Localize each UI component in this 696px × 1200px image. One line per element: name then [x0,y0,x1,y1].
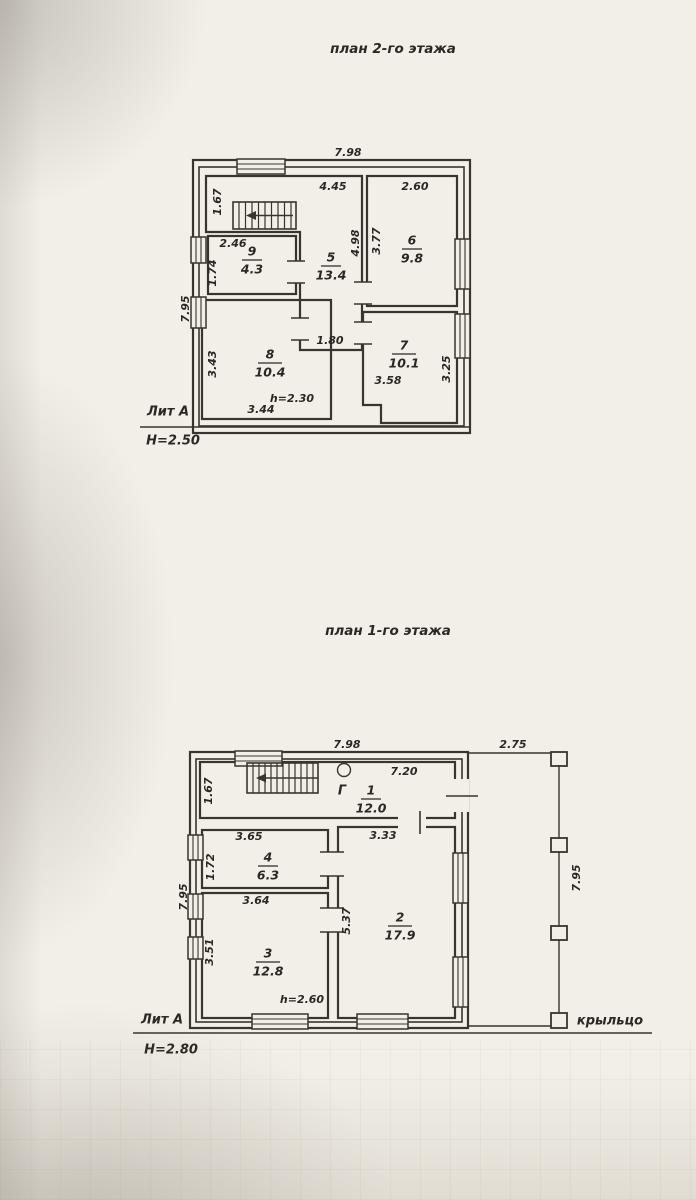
room6-number: 6 [408,233,417,248]
room7-area: 10.1 [389,356,420,371]
room3-number: 3 [264,946,273,961]
window-icon [188,937,203,959]
window-icon [237,159,285,174]
room8-number: 8 [266,347,275,362]
dim-f1-stair-left: 1.67 [202,777,215,804]
floor1-room-labels: 1 12.0 4 6.3 3 12.8 2 17.9 [253,783,416,979]
floorplan-photo-page: план 2-го этажа [0,0,696,1200]
dim-f2-stair-left: 1.67 [211,188,224,215]
floor2-building-height: Н=2.50 [146,434,200,449]
room5-area: 13.4 [316,268,347,283]
room8-area: 10.4 [255,365,286,380]
dim-f2-room9-left: 1.74 [206,259,219,286]
dim-f1-left-side: 7.95 [177,883,190,910]
dim-f2-corridor: 1.80 [316,334,343,347]
room4-number: 4 [263,850,273,865]
window-icon [191,237,206,263]
dim-f2-room8-left: 3.43 [206,350,219,377]
dim-f2-left-side: 7.95 [179,295,192,322]
dim-f2-room6-side: 3.77 [370,227,383,254]
room2-number: 2 [396,910,405,925]
dim-f1-room1-top: 7.20 [390,765,417,778]
room9-area: 4.3 [240,262,263,277]
floor2-stairs [233,202,296,229]
porch-pillar [551,752,567,766]
dim-f1-room2-side: 5.37 [340,907,353,934]
dim-f2-room9-top: 2.46 [219,237,246,250]
room7-number: 7 [400,338,409,353]
floor1-litera: Лит А [140,1013,183,1028]
floorplan-drawing: план 2-го этажа [0,0,696,1200]
room5-number: 5 [327,250,336,265]
dim-f1-porch-right: 7.95 [570,864,583,891]
window-icon [252,1014,308,1029]
stairs-direction-arrow-icon [246,211,256,220]
porch-label: крыльцо [577,1014,643,1029]
dim-f1-room4-top: 3.65 [235,830,262,843]
room6-area: 9.8 [401,251,423,266]
stove-circle-icon [338,764,351,777]
porch-pillar [551,838,567,852]
floor1-plan: план 1-го этажа [133,623,652,1058]
dim-f1-width-top: 7.98 [333,738,360,751]
dim-f1-room2-top: 3.33 [369,829,396,842]
window-icon [453,853,468,903]
room1-number: 1 [367,783,376,798]
window-icon [188,835,203,860]
floor2-litera: Лит А [146,405,189,420]
room9-number: 9 [248,244,257,259]
floor1-building-height: Н=2.80 [144,1043,198,1058]
floor1-dimensions: 7.98 2.75 7.20 1.67 3.65 1.72 3.33 3.64 … [177,738,583,1006]
window-icon [191,297,206,328]
porch-pillar [551,926,567,940]
window-icon [188,894,203,919]
dim-f2-room8-bottom: 3.44 [247,403,274,416]
dim-f2-ceiling-height: h=2.30 [270,392,315,405]
room4-area: 6.3 [257,868,279,883]
dim-f2-room5-side: 4.98 [349,229,362,257]
dim-f1-room4-left: 1.72 [204,853,217,880]
gas-label: Г [338,784,347,799]
floor1-title: план 1-го этажа [325,623,451,639]
floor1-room-walls [200,762,455,1018]
room3-area: 12.8 [253,964,284,979]
room2-area: 17.9 [385,928,416,943]
window-icon [455,314,470,358]
floor2-room-walls [202,176,457,423]
window-icon [357,1014,408,1029]
floor2-title: план 2-го этажа [330,41,456,57]
dim-f1-room3-left: 3.51 [203,938,216,965]
floor1-stairs [247,763,318,793]
window-icon [455,239,470,289]
room1-area: 12.0 [356,801,387,816]
floor1-porch [468,752,567,1028]
dim-f1-porch-top: 2.75 [499,738,526,751]
dim-f2-room7-width: 3.58 [374,374,401,387]
dim-f2-room7-right: 3.25 [440,355,453,382]
floor2-plan: план 2-го этажа [140,41,471,449]
dim-f2-room6-top: 2.60 [401,180,428,193]
dim-f2-width-top: 7.98 [334,146,361,159]
dim-f2-hall-top: 4.45 [318,180,346,193]
porch-pillar [551,1013,567,1028]
stairs-direction-arrow-icon [256,774,266,783]
dim-f1-ceiling-height: h=2.60 [280,993,325,1006]
dim-f1-room3-top: 3.64 [242,894,269,907]
window-icon [453,957,468,1007]
